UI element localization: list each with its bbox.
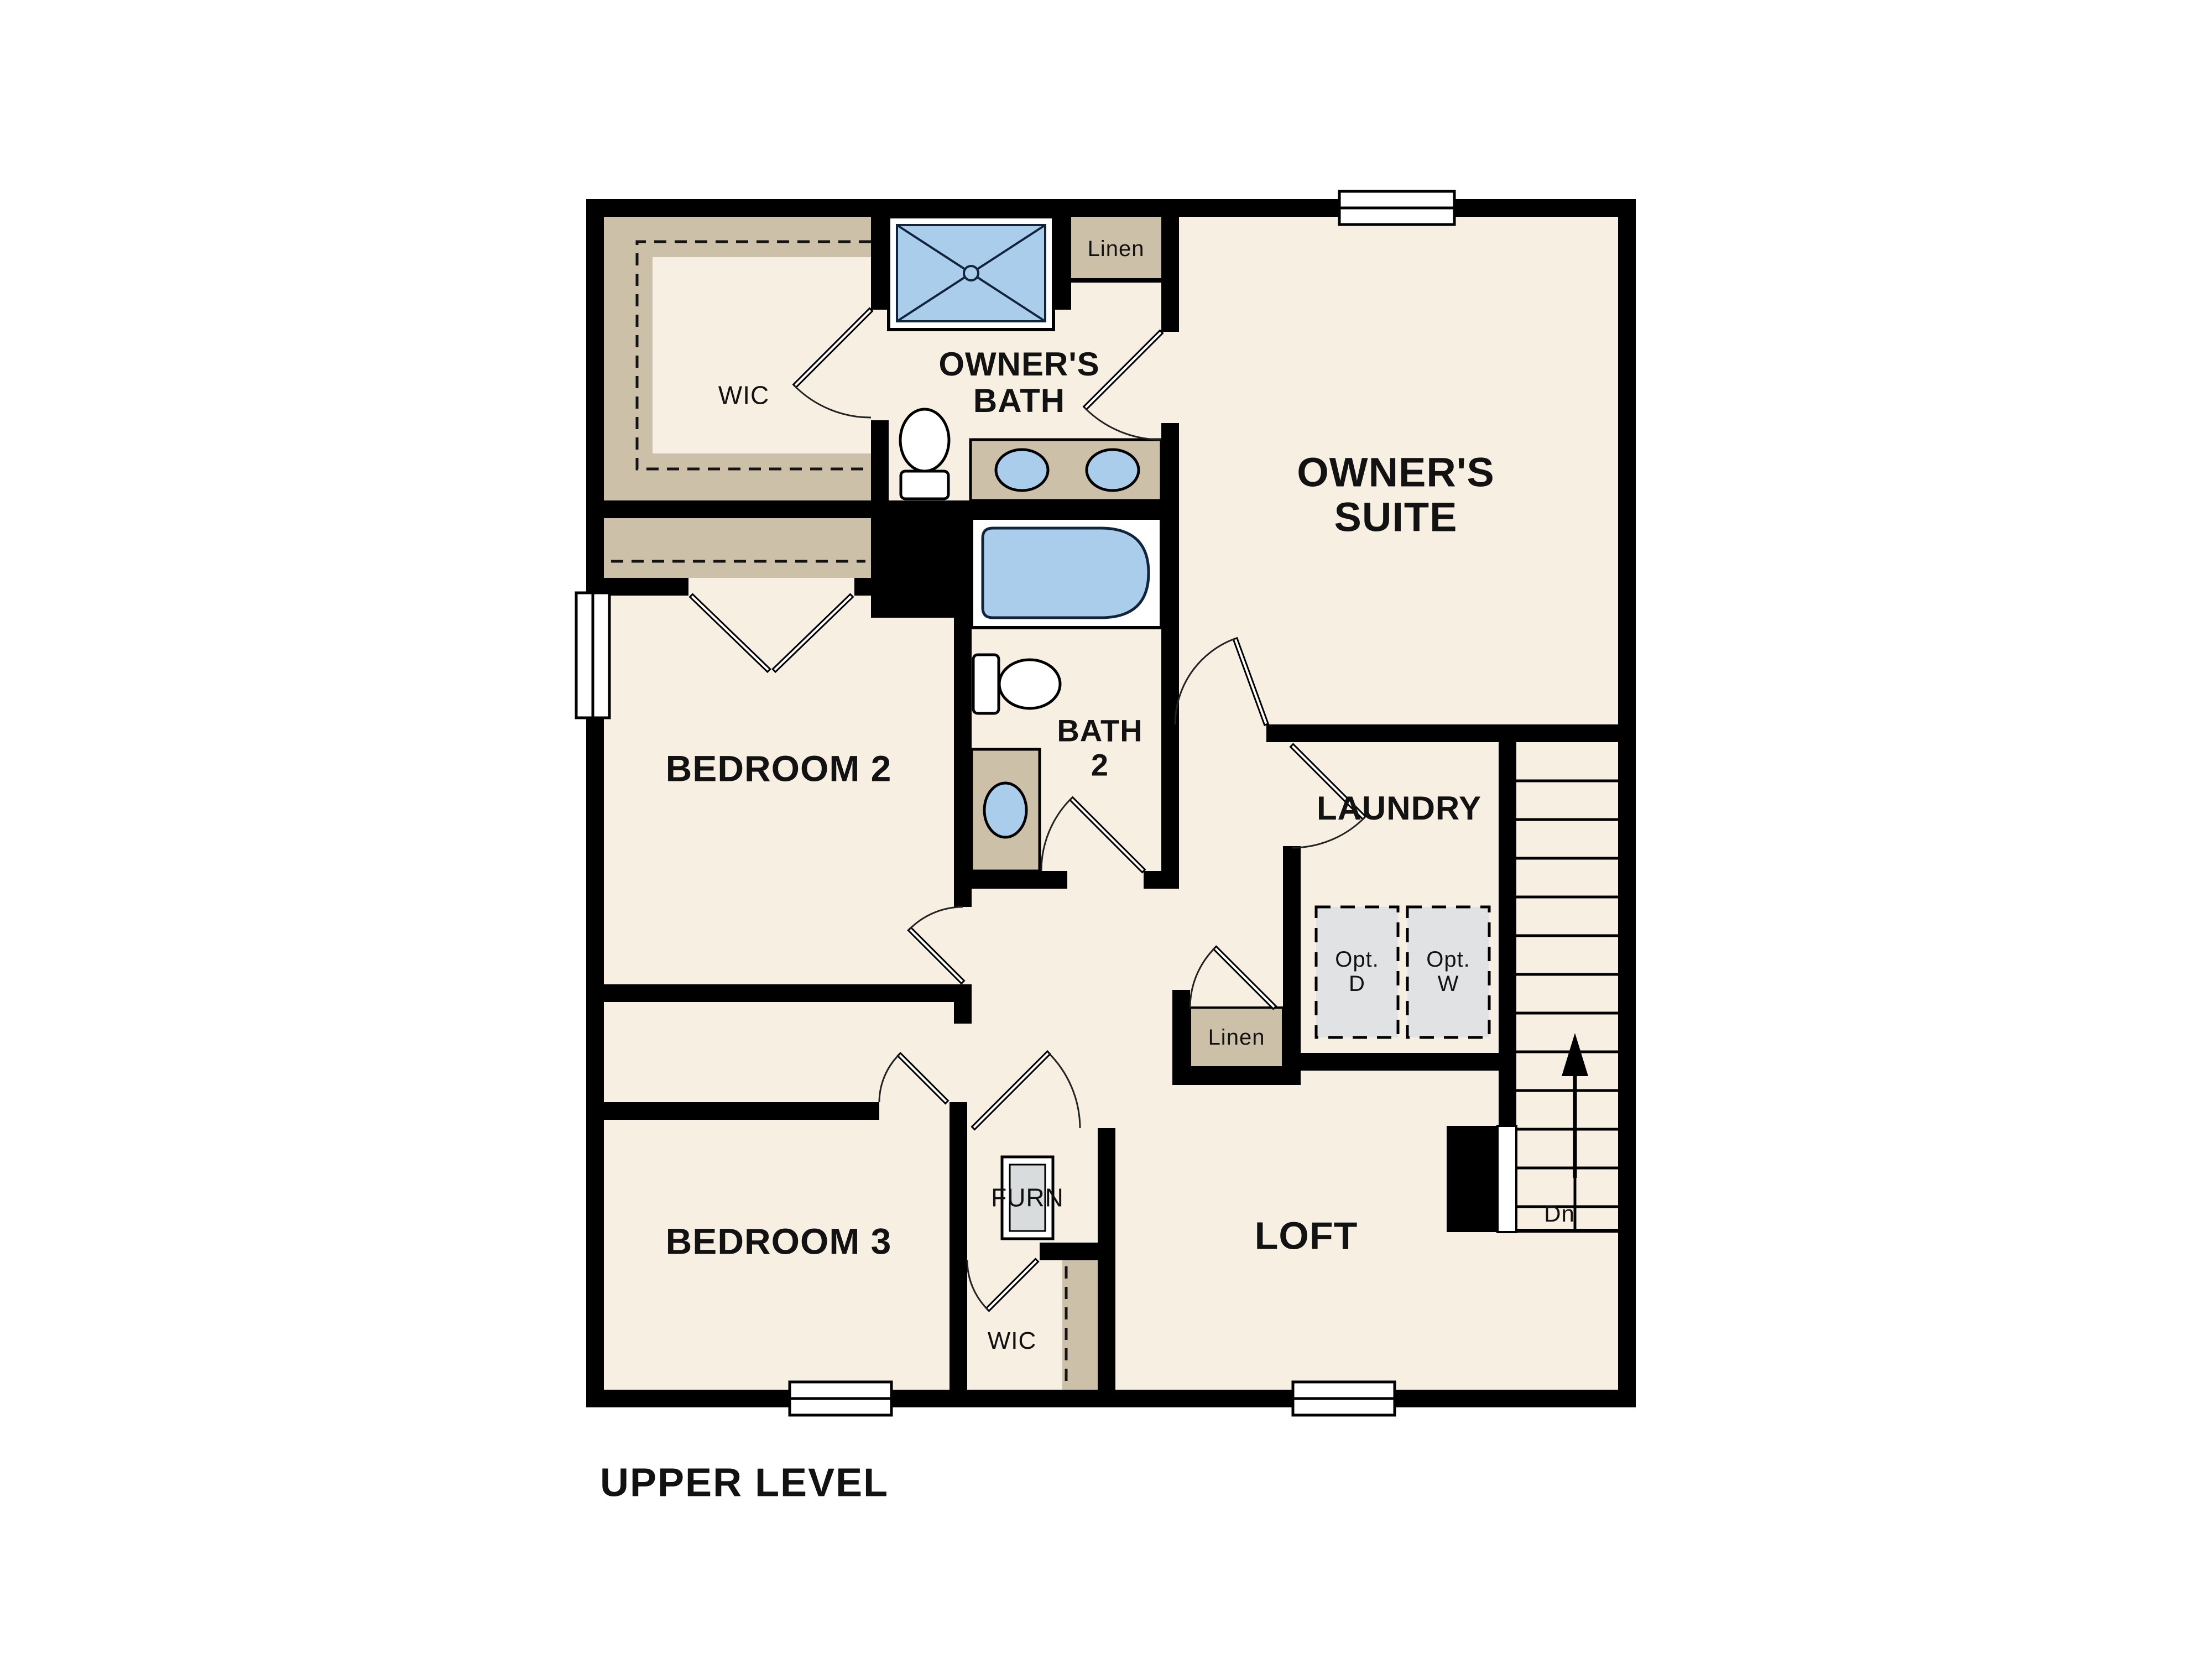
shower-drain-icon <box>964 266 978 280</box>
window-bedroom2 <box>576 593 609 718</box>
stair-landing-wall <box>1447 1126 1498 1232</box>
label-line: W <box>1426 972 1470 996</box>
room-label-laundry: LAUNDRY <box>1317 790 1481 827</box>
room-label-furnace: FURN <box>991 1184 1064 1212</box>
room-label-owners-suite: OWNER'S SUITE <box>1297 450 1495 540</box>
sink <box>996 450 1048 491</box>
stair-railing <box>1498 1126 1516 1232</box>
bath2-toilet <box>973 655 1060 713</box>
room-label-bath2: BATH 2 <box>1057 713 1142 781</box>
bathtub <box>972 518 1161 628</box>
wic-bottom-shelf <box>1062 1260 1098 1390</box>
room-label-line: SUITE <box>1297 495 1495 540</box>
room-label-bedroom2: BEDROOM 2 <box>666 749 892 789</box>
window-bedroom3 <box>790 1382 891 1415</box>
sink <box>984 783 1026 837</box>
label-line: Opt. <box>1335 947 1379 972</box>
window-owners-suite <box>1339 191 1454 225</box>
room-label-bedroom3: BEDROOM 3 <box>666 1222 892 1262</box>
bath2-vanity <box>972 749 1040 871</box>
room-label-line: BATH <box>938 383 1099 419</box>
shower <box>889 217 1053 330</box>
room-label-owners-bath: OWNER'S BATH <box>938 346 1099 419</box>
room-label-wic-bottom: WIC <box>988 1328 1037 1354</box>
room-label-line: BATH <box>1057 713 1142 748</box>
label-opt-washer: Opt. W <box>1426 947 1470 996</box>
sink <box>1087 450 1139 491</box>
room-label-linen-top: Linen <box>1088 237 1145 261</box>
owners-bath-vanity <box>971 440 1161 500</box>
bedroom2-closet-shelf <box>604 518 871 578</box>
room-label-linen-hall: Linen <box>1208 1025 1265 1050</box>
label-opt-dryer: Opt. D <box>1335 947 1379 996</box>
label-line: Opt. <box>1426 947 1470 972</box>
floor-plan-page: WIC OWNER'S BATH Linen OWNER'S SUITE BED… <box>0 0 2212 1659</box>
label-stairs-down: Dn <box>1544 1201 1575 1227</box>
owners-bath-toilet <box>900 409 949 499</box>
window-loft <box>1293 1382 1395 1415</box>
room-label-wic-top: WIC <box>718 382 769 410</box>
room-label-loft: LOFT <box>1255 1215 1358 1258</box>
room-label-line: OWNER'S <box>1297 450 1495 495</box>
label-line: D <box>1335 972 1379 996</box>
room-label-line: 2 <box>1057 748 1142 782</box>
room-label-line: OWNER'S <box>938 346 1099 383</box>
floor-title: UPPER LEVEL <box>600 1461 889 1505</box>
